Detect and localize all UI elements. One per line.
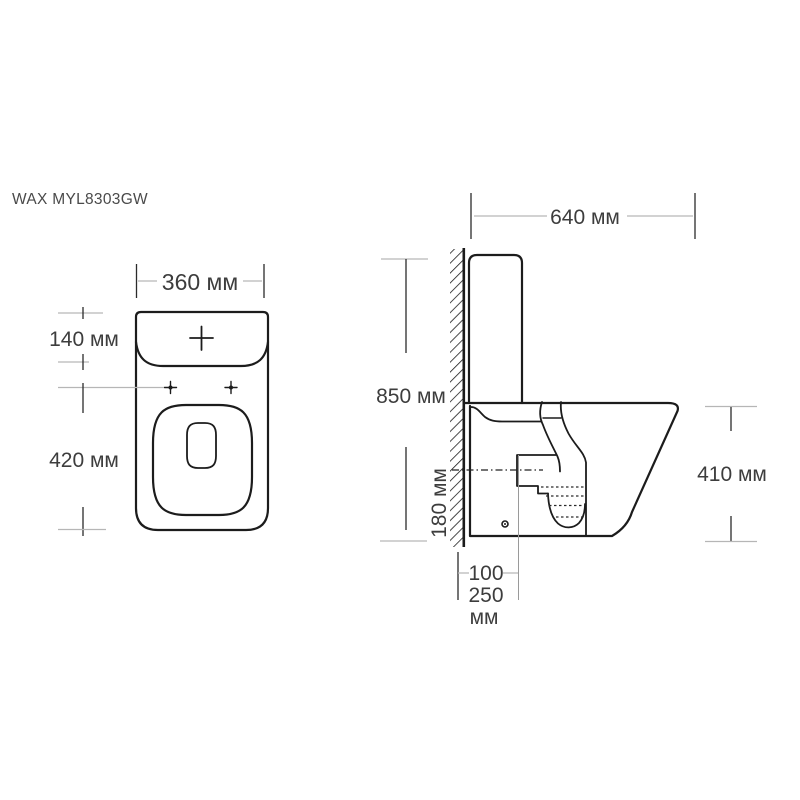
bowl-opening-outline [187, 423, 216, 468]
technical-drawing-page: WAX MYL8303GW 360 мм [0, 0, 800, 800]
side-view: 640 мм 850 мм 180 мм 410 мм 100 250 м [376, 193, 767, 629]
dim-outlet-offset-max-label: 250 [468, 584, 503, 607]
dim-top-width: 360 мм [137, 264, 265, 298]
model-label: WAX MYL8303GW [12, 191, 148, 208]
trapway-front-line [540, 402, 560, 472]
seat-fixing-hole-right [225, 382, 237, 394]
dim-top-width-label: 360 мм [162, 269, 238, 295]
dim-tank-depth-label: 140 мм [49, 328, 119, 351]
dim-outlet-offset-unit-label: мм [470, 606, 499, 629]
seat-fixing-hole-left [165, 382, 177, 394]
seat-outline [153, 405, 252, 515]
dim-bowl-length-label: 420 мм [49, 449, 119, 472]
dim-tank-depth: 140 мм [49, 307, 119, 370]
dim-outlet-height: 180 мм [428, 468, 451, 538]
floor-fixing-hole [502, 521, 508, 527]
dim-bowl-length: 420 мм [49, 383, 164, 536]
dim-depth-label: 640 мм [550, 206, 620, 229]
dim-rim-height-label: 410 мм [697, 463, 767, 486]
flush-button-cross [190, 327, 213, 351]
trap-water-pocket [548, 494, 585, 528]
outlet-connection [517, 455, 556, 494]
dim-height-label: 850 мм [376, 385, 446, 408]
dim-outlet-height-label: 180 мм [428, 468, 451, 538]
inner-rim-profile [471, 407, 541, 422]
dim-rim-height: 410 мм [697, 407, 767, 542]
water-level-lines [541, 487, 586, 517]
trapway-back-line [561, 402, 586, 535]
dim-outlet-offset-min-label: 100 [468, 562, 503, 585]
wall [450, 248, 464, 547]
dim-outlet-offset: 100 250 мм [458, 455, 519, 629]
dim-depth: 640 мм [471, 193, 695, 239]
cistern-outline [469, 255, 522, 403]
top-view: 360 мм 140 мм 420 мм [49, 264, 268, 536]
toilet-dimension-drawing: WAX MYL8303GW 360 мм [0, 0, 800, 800]
